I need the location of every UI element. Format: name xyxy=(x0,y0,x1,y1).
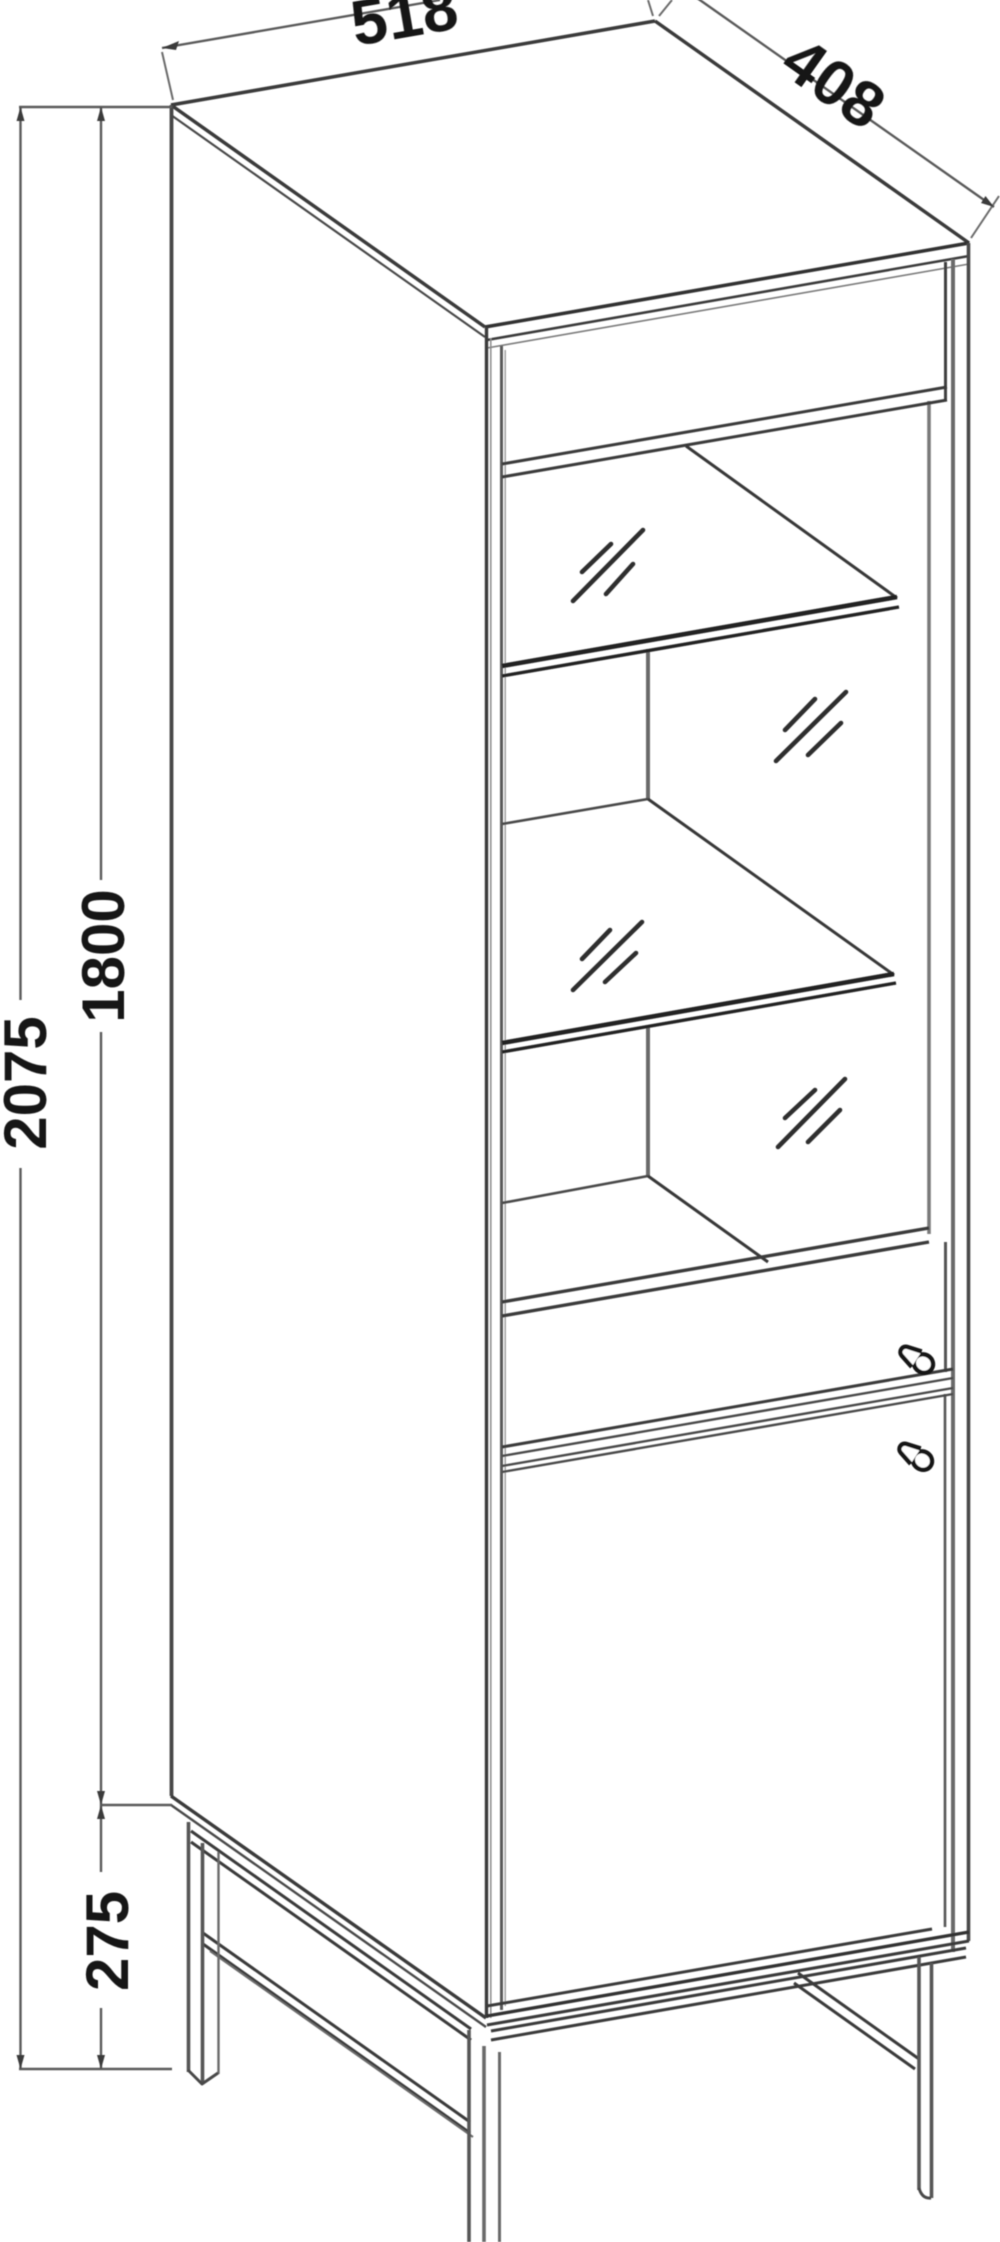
svg-text:275: 275 xyxy=(74,1891,141,1991)
svg-text:2075: 2075 xyxy=(0,1016,59,1149)
svg-text:1800: 1800 xyxy=(70,889,137,1022)
